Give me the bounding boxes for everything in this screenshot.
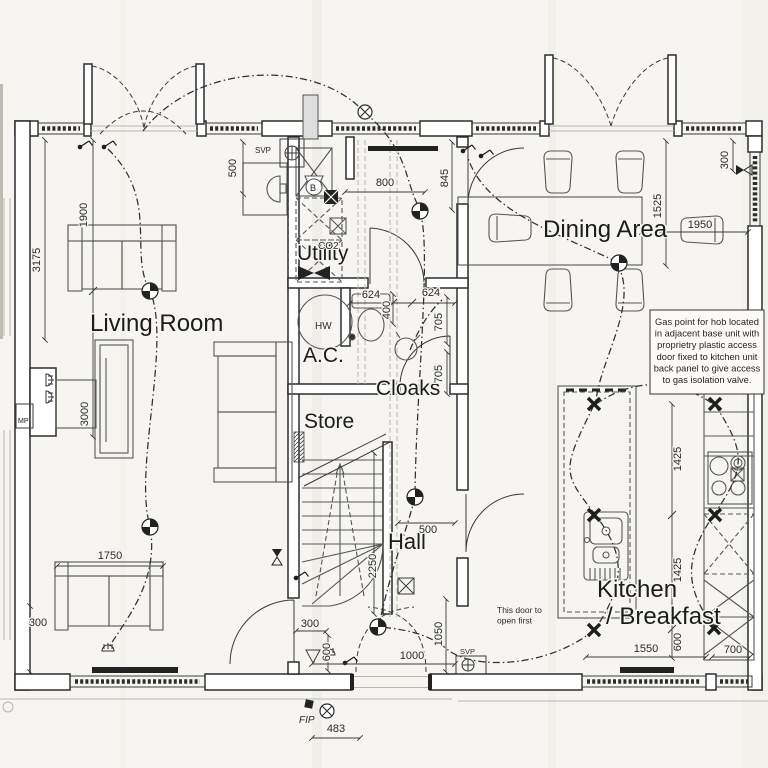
fip-icon bbox=[304, 699, 313, 708]
sofa-bottom bbox=[55, 562, 163, 630]
small-label-4: B bbox=[310, 183, 316, 193]
small-label-1: SVP bbox=[460, 647, 475, 656]
dim-label-10: 400 bbox=[381, 301, 393, 319]
gas-note-line-1: in adjacent base unit with bbox=[655, 329, 759, 339]
sofa-right bbox=[214, 342, 292, 482]
ceiling-light-icon bbox=[407, 489, 423, 505]
dim-label-7: 845 bbox=[439, 169, 451, 187]
dim-label-15: 1950 bbox=[688, 219, 712, 231]
dim-label-11: 705 bbox=[433, 313, 445, 331]
dim-label-21: 500 bbox=[419, 524, 437, 536]
dim-label-24: 1000 bbox=[400, 650, 424, 662]
french-door-living bbox=[84, 64, 204, 134]
external-light-icon bbox=[320, 704, 334, 718]
downlight-icon bbox=[588, 509, 600, 521]
small-labels: SVPSVPFIPCO2BHWMP bbox=[18, 146, 475, 726]
front-door bbox=[350, 607, 432, 690]
external-light-icon bbox=[358, 105, 372, 119]
room-label-6: Dining Area bbox=[543, 216, 668, 243]
gas-note-line-0: Gas point for hob located bbox=[655, 317, 759, 327]
switch-icon bbox=[479, 150, 494, 158]
gas-note-line-2: proprietry plastic access bbox=[657, 340, 757, 350]
living-room-furniture bbox=[16, 163, 292, 630]
ceiling-light-icon bbox=[611, 255, 627, 271]
downlight-icon bbox=[709, 509, 721, 521]
switch-icon bbox=[78, 141, 93, 149]
sideboard bbox=[95, 340, 133, 458]
gas-note-line-5: to gas isolation valve. bbox=[663, 375, 752, 385]
gas-note-line-3: door fixed to kitchen unit bbox=[657, 352, 758, 362]
smoke-detector-icon bbox=[398, 578, 414, 594]
dim-label-22: 2250 bbox=[367, 554, 379, 578]
room-label-2: A.C. bbox=[303, 344, 344, 367]
dim-label-1: 1900 bbox=[78, 203, 90, 227]
small-label-0: SVP bbox=[255, 146, 271, 155]
dim-label-5: 300 bbox=[29, 617, 47, 629]
left-wall bbox=[15, 121, 30, 690]
gas-note-line-4: back panel to give access bbox=[654, 363, 761, 373]
co2-detector bbox=[330, 218, 346, 234]
ceiling-light-icon bbox=[142, 283, 158, 299]
ceiling-light-icon bbox=[370, 619, 386, 635]
internal-door-swings bbox=[230, 148, 524, 664]
dim-label-9: 624 bbox=[422, 287, 440, 299]
dim-label-3: 3000 bbox=[79, 402, 91, 426]
dim-label-19: 1550 bbox=[634, 643, 658, 655]
ceiling-light-icon bbox=[142, 519, 158, 535]
gas-note: Gas point for hob locatedin adjacent bas… bbox=[650, 310, 764, 394]
dim-label-14: 1525 bbox=[652, 194, 664, 218]
small-label-3: CO2 bbox=[318, 241, 339, 252]
dim-label-2: 3175 bbox=[31, 248, 43, 272]
dim-label-8: 624 bbox=[362, 289, 380, 301]
door-note-line-0: This door to bbox=[497, 605, 542, 615]
ceiling-light-icon bbox=[412, 203, 428, 219]
room-label-7: Kitchen bbox=[597, 576, 677, 603]
dim-label-26: 600 bbox=[321, 643, 333, 661]
socket-icon bbox=[272, 549, 282, 565]
bottom-windows bbox=[70, 676, 752, 687]
sink bbox=[584, 512, 628, 580]
room-label-4: Store bbox=[304, 410, 354, 433]
downlight-icon bbox=[588, 398, 600, 410]
downlight-icon bbox=[588, 624, 600, 636]
room-labels: Living RoomUtilityA.C.CloaksStoreHallDin… bbox=[90, 216, 721, 630]
dim-label-18: 600 bbox=[672, 633, 684, 651]
room-label-8: / Breakfast bbox=[606, 603, 721, 630]
wall-light-icon bbox=[102, 643, 114, 651]
downlight-icon bbox=[709, 398, 721, 410]
stairs bbox=[298, 434, 390, 606]
floor-plan-scan: Gas point for hob locatedin adjacent bas… bbox=[0, 0, 768, 768]
svp-bottom-icon bbox=[456, 656, 486, 674]
room-label-0: Living Room bbox=[90, 310, 223, 337]
small-label-5: HW bbox=[315, 321, 332, 332]
door-note-line-1: open first bbox=[497, 616, 533, 626]
dim-label-0: 500 bbox=[227, 159, 239, 177]
dim-label-4: 1750 bbox=[98, 550, 122, 562]
dim-label-12: 705 bbox=[433, 365, 445, 383]
small-label-6: MP bbox=[18, 418, 29, 425]
dim-label-13: 300 bbox=[719, 151, 731, 169]
dim-label-17: 1425 bbox=[672, 558, 684, 582]
dim-label-16: 1425 bbox=[672, 447, 684, 471]
dim-label-6: 800 bbox=[376, 177, 394, 189]
socket-box bbox=[324, 190, 338, 204]
dim-label-20: 700 bbox=[724, 644, 742, 656]
room-label-3: Cloaks bbox=[376, 377, 440, 400]
french-door-dining bbox=[545, 55, 676, 131]
dim-label-25: 300 bbox=[301, 618, 319, 630]
dim-label-23: 1050 bbox=[433, 622, 445, 646]
dim-label-27: 483 bbox=[327, 723, 345, 735]
floor-plan-drawing: Gas point for hob locatedin adjacent bas… bbox=[0, 0, 768, 768]
small-label-2: FIP bbox=[299, 715, 315, 726]
door-note-lines: This door toopen first bbox=[497, 605, 542, 626]
switch-icon bbox=[102, 141, 117, 149]
tv-unit bbox=[243, 163, 287, 215]
